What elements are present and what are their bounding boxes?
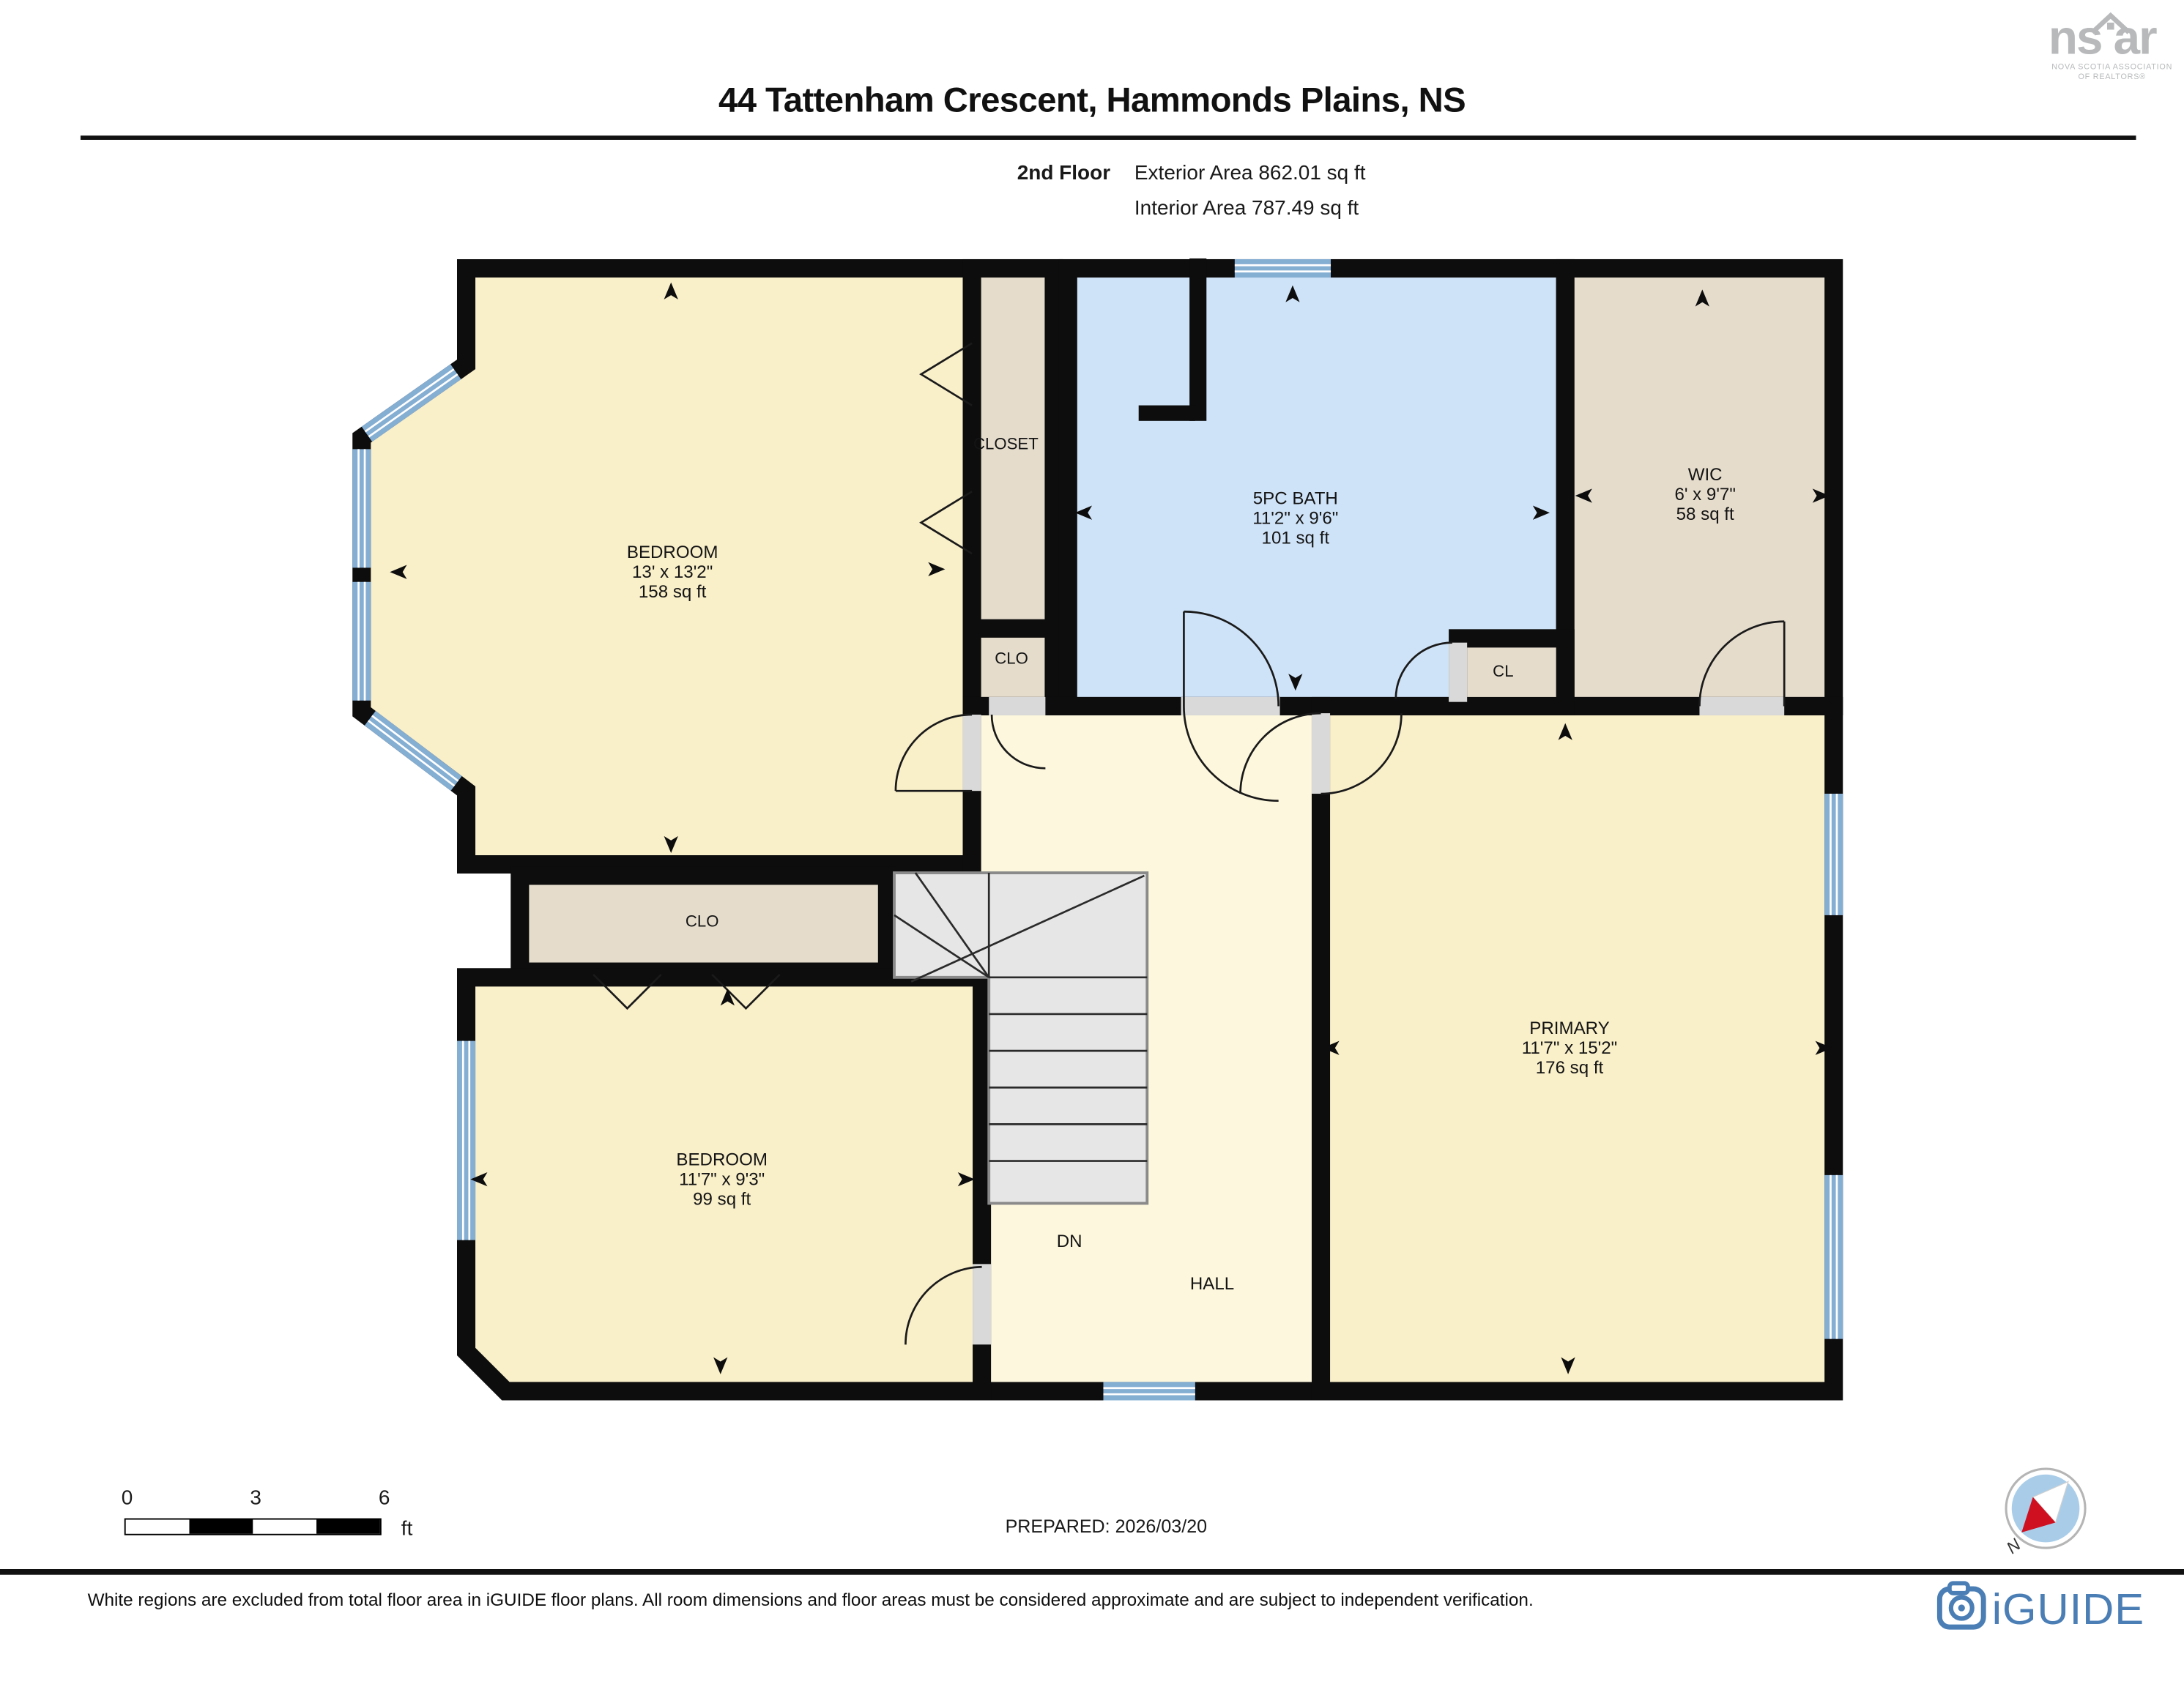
iguide-logo: iGUIDE [1936,1576,2176,1639]
label-bath: 5PC BATH 11'2" x 9'6" 101 sq ft [1252,488,1338,548]
label-wic: WIC 6' x 9'7" 58 sq ft [1674,465,1735,524]
rooms [362,268,1834,1390]
floorplan-design: 44 Tattenham Crescent, Hammonds Plains, … [0,0,2184,1687]
floor-plan-drawing [0,0,2184,1687]
iguide-wordmark: iGUIDE [1992,1584,2144,1634]
label-bedroom-bl: BEDROOM 11'7" x 9'3" 99 sq ft [676,1150,768,1209]
label-clo-mid: CLO [686,912,719,932]
footer-divider [0,1569,2184,1574]
scale-tick-6: 6 [379,1487,390,1510]
scale-tick-0: 0 [122,1487,133,1510]
label-cl: CL [1493,663,1513,682]
prepared-date: PREPARED: 2026/03/20 [0,1516,2184,1537]
disclaimer-text: White regions are excluded from total fl… [88,1590,1534,1610]
scale-tick-3: 3 [250,1487,261,1510]
label-clo-upper: CLO [995,649,1028,669]
label-hall: HALL [1190,1274,1234,1294]
label-closet-top: CLOSET [973,435,1039,455]
floorplan-page: 44 Tattenham Crescent, Hammonds Plains, … [0,0,2184,1687]
label-bedroom-tl: BEDROOM 13' x 13'2" 158 sq ft [627,543,718,602]
label-primary: PRIMARY 11'7" x 15'2" 176 sq ft [1522,1018,1617,1078]
compass-icon: N [2002,1464,2092,1557]
label-stairs-dn: DN [1057,1232,1082,1251]
